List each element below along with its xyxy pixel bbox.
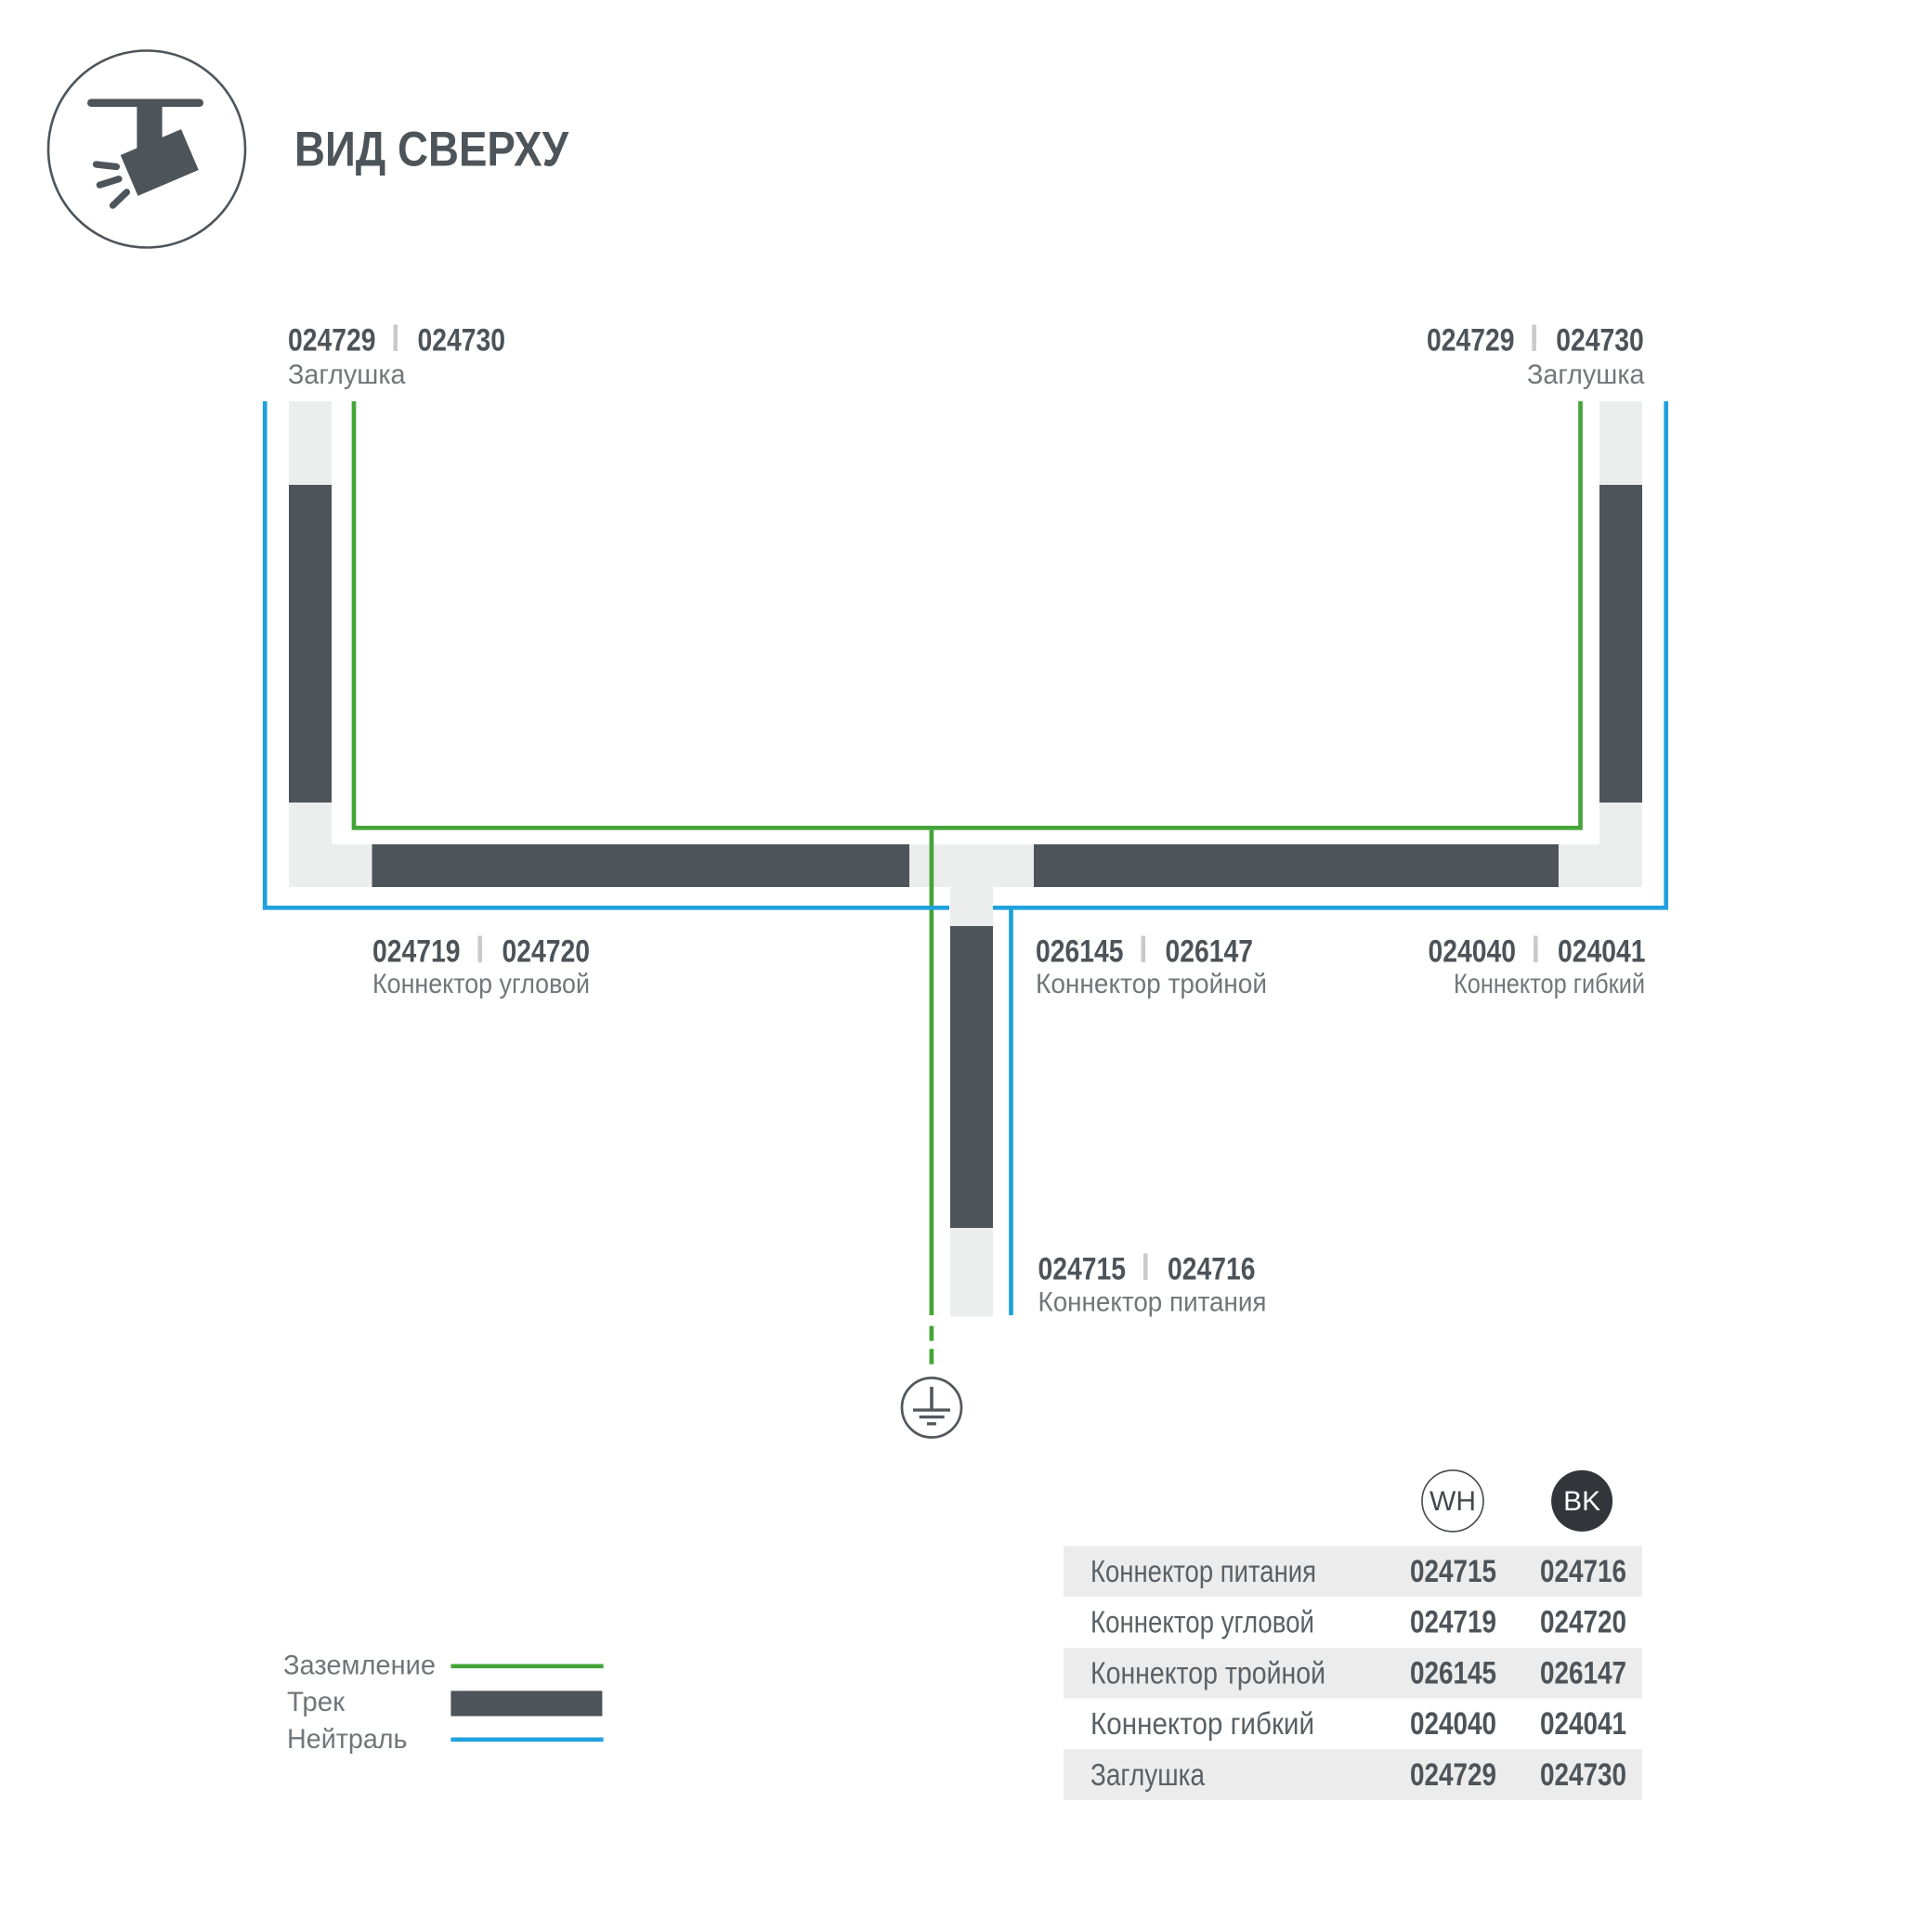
svg-text:024715: 024715 <box>1410 1554 1496 1589</box>
svg-text:026147: 026147 <box>1540 1655 1626 1690</box>
svg-text:Заглушка: Заглушка <box>1527 359 1645 390</box>
svg-text:024729: 024729 <box>1410 1757 1496 1793</box>
svg-text:Коннектор угловой: Коннектор угловой <box>1090 1605 1314 1639</box>
svg-text:Коннектор питания: Коннектор питания <box>1038 1287 1267 1318</box>
svg-text:Коннектор тройной: Коннектор тройной <box>1090 1655 1325 1690</box>
svg-text:Заземление: Заземление <box>283 1651 436 1681</box>
svg-text:024719: 024719 <box>1410 1605 1496 1640</box>
svg-text:WH: WH <box>1429 1486 1476 1517</box>
svg-text:Заглушка: Заглушка <box>1090 1757 1206 1792</box>
svg-text:024716: 024716 <box>1540 1554 1626 1589</box>
svg-text:026145: 026145 <box>1410 1655 1496 1690</box>
svg-text:024041: 024041 <box>1558 934 1646 970</box>
svg-text:024040: 024040 <box>1429 934 1517 970</box>
svg-text:024720: 024720 <box>1540 1605 1626 1640</box>
svg-text:026147: 026147 <box>1166 934 1254 970</box>
svg-text:024040: 024040 <box>1410 1706 1496 1742</box>
svg-text:024729: 024729 <box>1427 323 1515 359</box>
svg-text:024729: 024729 <box>288 323 376 359</box>
svg-text:Коннектор тройной: Коннектор тройной <box>1036 969 1267 999</box>
svg-text:024715: 024715 <box>1038 1252 1127 1287</box>
svg-text:Заглушка: Заглушка <box>288 359 406 390</box>
svg-text:Трек: Трек <box>287 1687 346 1717</box>
svg-text:BK: BK <box>1563 1486 1600 1517</box>
svg-text:ВИД СВЕРХУ: ВИД СВЕРХУ <box>294 123 569 177</box>
svg-text:024720: 024720 <box>503 934 591 970</box>
svg-text:024041: 024041 <box>1540 1706 1626 1742</box>
svg-text:Коннектор гибкий: Коннектор гибкий <box>1454 969 1645 999</box>
svg-text:Коннектор угловой: Коннектор угловой <box>372 969 590 999</box>
svg-text:026145: 026145 <box>1036 934 1124 970</box>
svg-text:024716: 024716 <box>1168 1252 1256 1287</box>
svg-text:024730: 024730 <box>1540 1757 1626 1793</box>
svg-text:024730: 024730 <box>418 323 506 359</box>
svg-text:024730: 024730 <box>1556 323 1644 359</box>
svg-text:Коннектор питания: Коннектор питания <box>1090 1554 1316 1588</box>
svg-text:Коннектор гибкий: Коннектор гибкий <box>1090 1706 1314 1741</box>
svg-text:024719: 024719 <box>372 934 461 970</box>
svg-text:Нейтраль: Нейтраль <box>287 1724 408 1755</box>
